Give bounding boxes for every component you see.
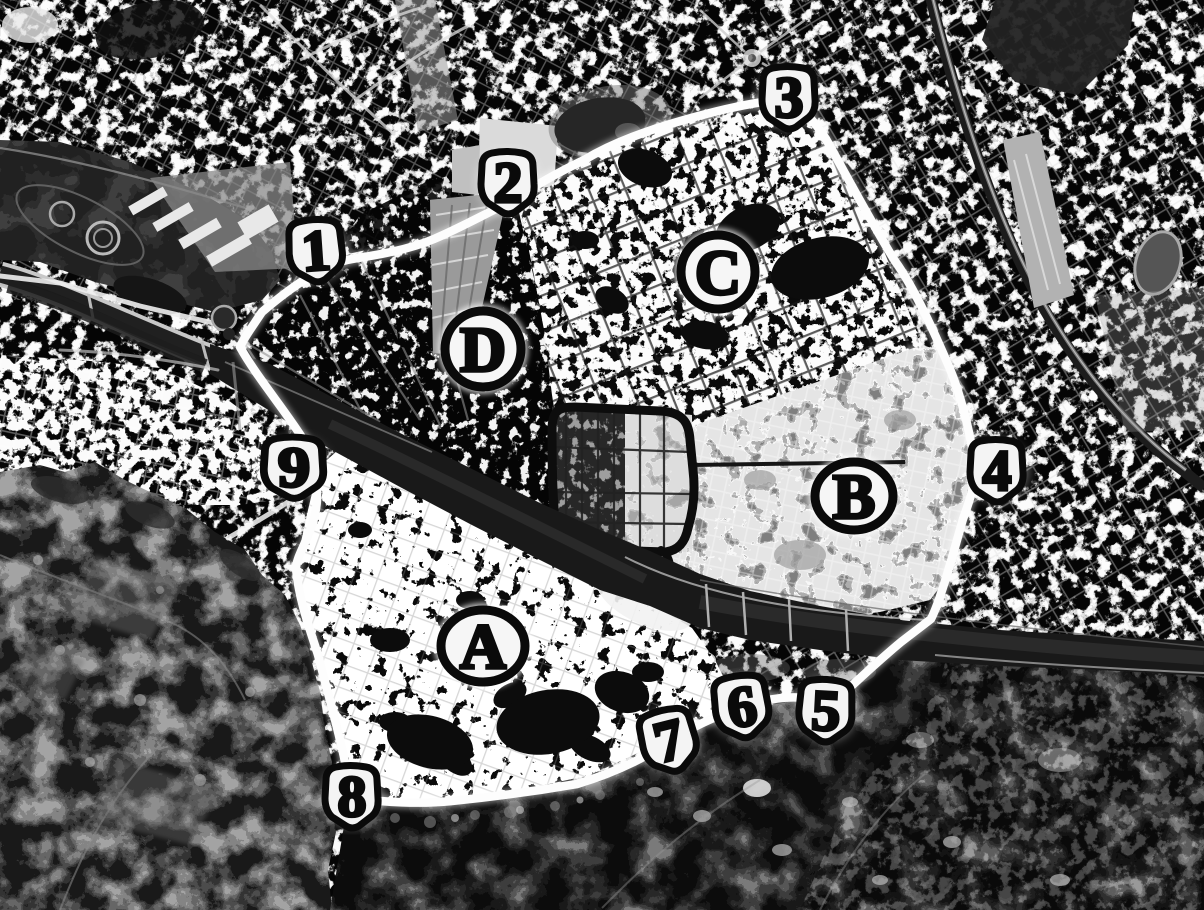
svg-text:3: 3 xyxy=(775,65,804,130)
svg-text:2: 2 xyxy=(494,150,523,215)
svg-text:B: B xyxy=(833,461,876,532)
svg-text:1: 1 xyxy=(299,217,332,284)
svg-text:A: A xyxy=(460,611,506,682)
svg-text:8: 8 xyxy=(338,764,367,829)
svg-text:9: 9 xyxy=(278,437,310,499)
svg-text:5: 5 xyxy=(810,677,842,743)
svg-text:D: D xyxy=(460,314,506,385)
svg-text:4: 4 xyxy=(983,438,1012,503)
svg-text:C: C xyxy=(695,237,741,308)
